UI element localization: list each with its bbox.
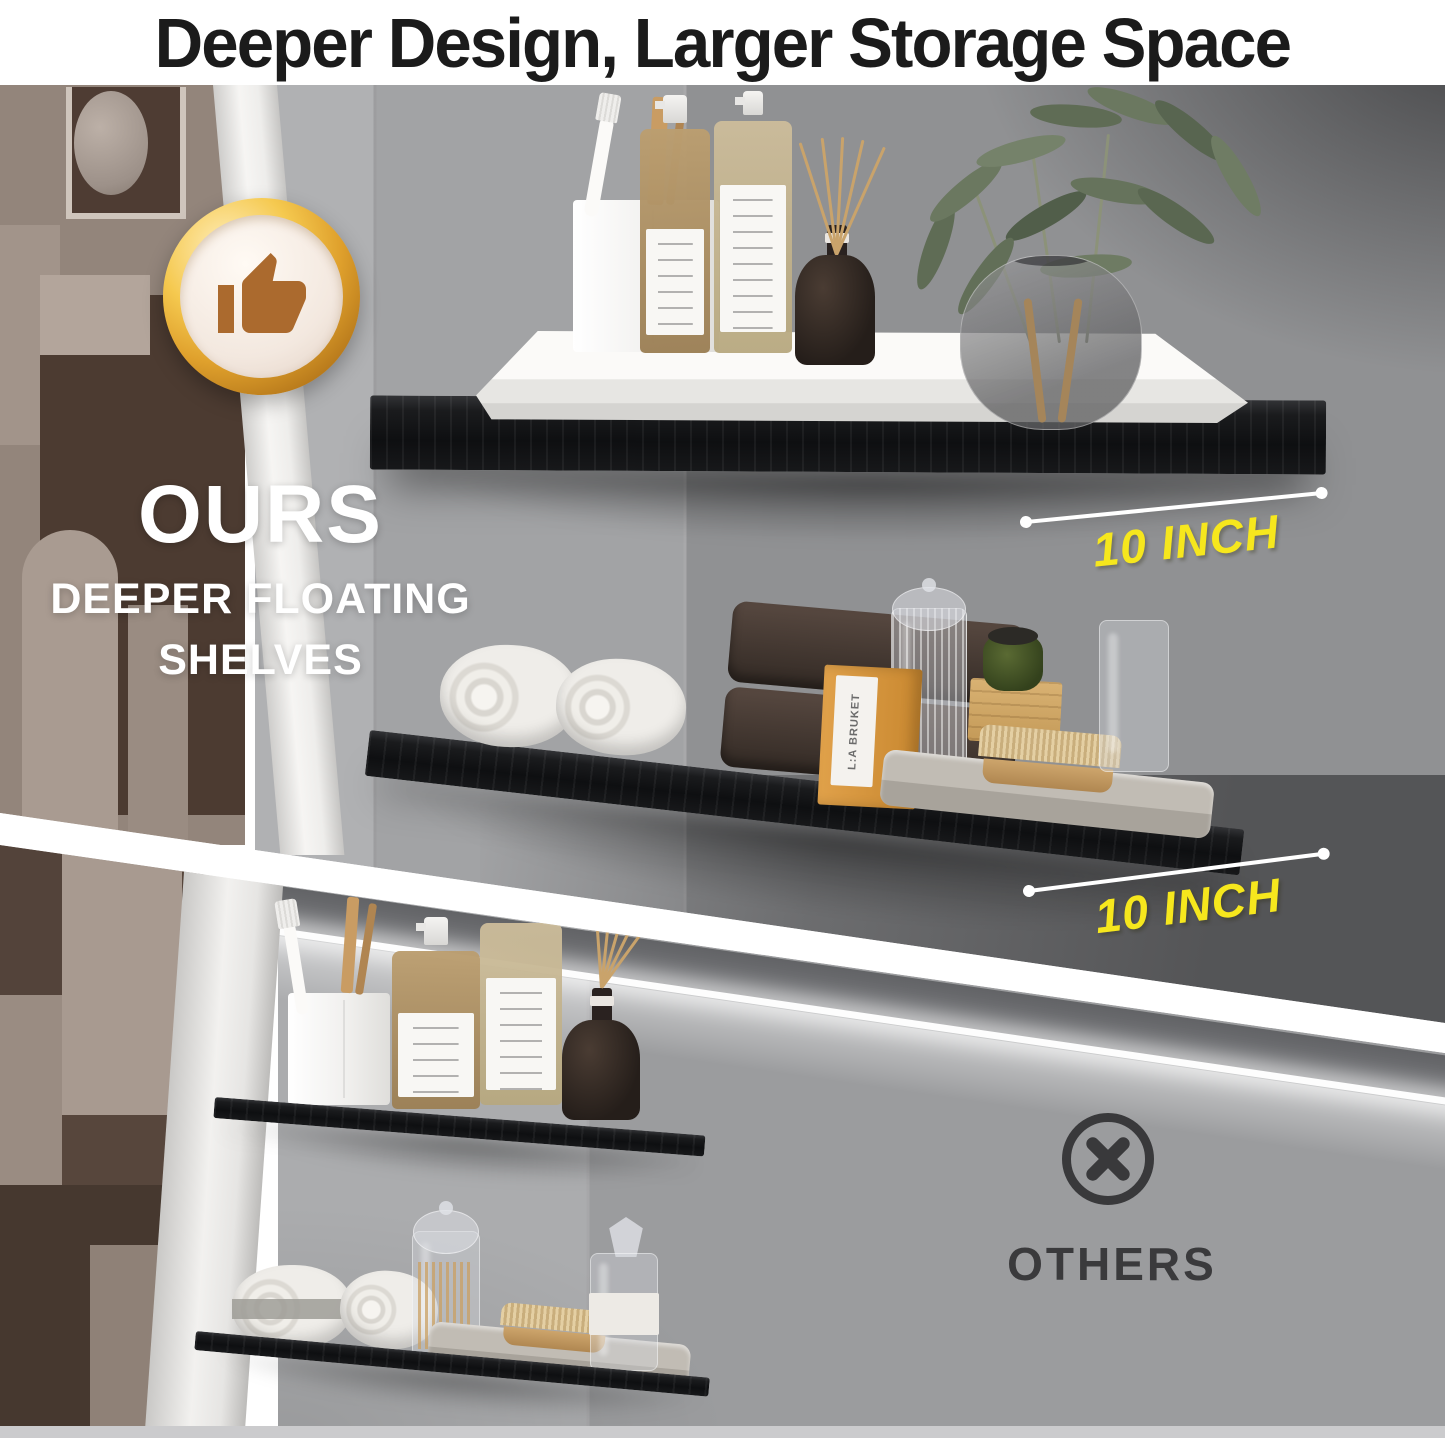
- diffuser-neck: [592, 988, 612, 1024]
- ours-subtitle-line2: SHELVES: [8, 636, 513, 685]
- cosmetic-bottle: [480, 893, 562, 1105]
- diffuser-reeds: [795, 145, 875, 255]
- page-title: Deeper Design, Larger Storage Space: [155, 3, 1290, 83]
- product-infographic: Deeper Design, Larger Storage Space: [0, 0, 1445, 1438]
- pump-bottle: [392, 917, 480, 1109]
- others-label: OTHERS: [962, 1237, 1262, 1291]
- green-candle: [983, 635, 1043, 691]
- ours-label: OURS: [8, 468, 513, 562]
- floor-edge: [0, 1426, 1445, 1438]
- cosmetic-bottle: [714, 91, 792, 353]
- glass-vase: [960, 255, 1142, 430]
- reed-diffuser-bottle: [562, 1020, 640, 1120]
- pump-bottle: [640, 95, 710, 353]
- ours-caption: OURS DEEPER FLOATING SHELVES: [8, 85, 513, 785]
- comparison-photo: L:A BRUKET OURS DEEPER FL: [0, 85, 1445, 1438]
- x-circle-icon: [1062, 1113, 1154, 1205]
- soap-box-label: L:A BRUKET: [846, 693, 862, 770]
- glass-decanter: [590, 1253, 658, 1371]
- glass-bottle: [1099, 620, 1169, 772]
- ours-subtitle-line1: DEEPER FLOATING: [8, 575, 513, 624]
- title-banner: Deeper Design, Larger Storage Space: [0, 0, 1445, 85]
- reed-diffuser-bottle: [795, 255, 875, 365]
